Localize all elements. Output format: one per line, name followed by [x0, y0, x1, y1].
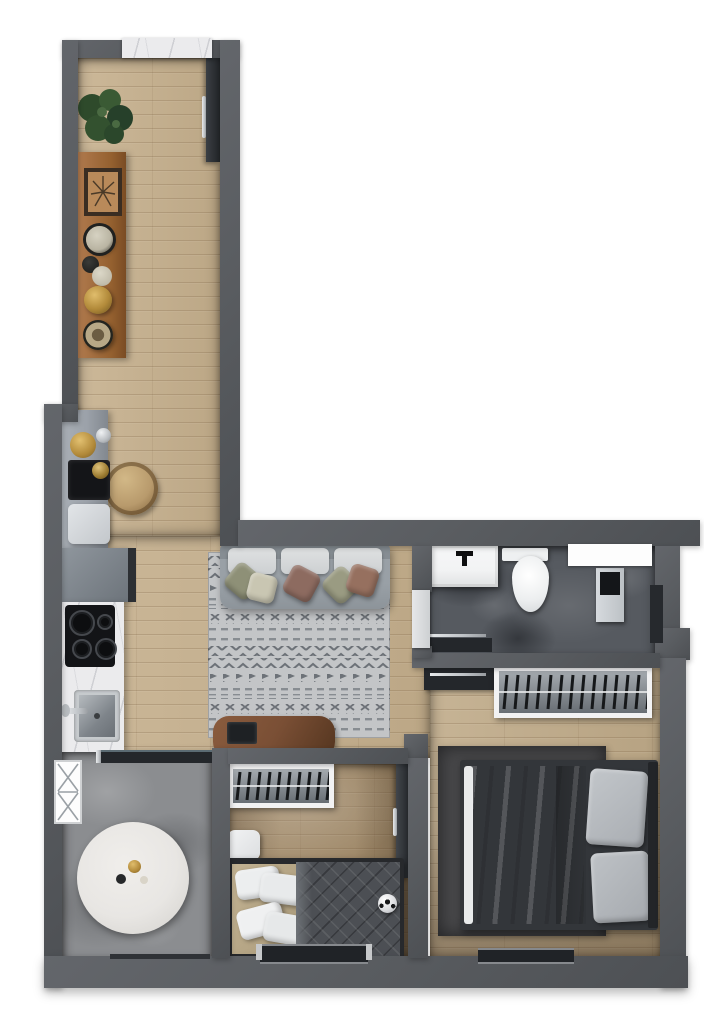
wall-dining-divider [212, 748, 230, 958]
sink-drain-icon [94, 713, 100, 719]
left-window [54, 760, 82, 824]
bathroom-window [568, 544, 652, 566]
bed-pillow [585, 768, 648, 848]
kitchen-window-marble-sill [122, 38, 212, 58]
decor-bowl-stack [83, 320, 113, 350]
refrigerator [62, 548, 128, 602]
wall-left-lower [44, 404, 62, 988]
sliding-glass-door [100, 750, 212, 763]
entry-door [206, 58, 220, 162]
gold-cup [92, 462, 109, 479]
soccer-ball [378, 894, 397, 913]
bed-pillow [590, 851, 652, 924]
burner-icon [95, 638, 117, 660]
laptop [227, 722, 257, 744]
primary-bedroom-window [478, 948, 574, 964]
decor-plate-medium [92, 266, 112, 286]
wardrobe [228, 764, 334, 808]
duvet-fold [296, 862, 312, 956]
door-handle-icon [393, 808, 397, 836]
wall-bedrooms-divider [408, 758, 428, 958]
bedroom2-window [260, 944, 368, 964]
floor-plan [0, 0, 704, 1024]
bedroom-sliding-door [424, 666, 496, 690]
brass-pot [84, 286, 112, 314]
gold-dish [70, 432, 96, 458]
vanity-faucet-icon [462, 551, 467, 566]
sink-basin [79, 695, 115, 737]
kitchen-sink [74, 690, 120, 742]
bathroom-door [412, 590, 430, 648]
wall-hallway-right [220, 40, 240, 546]
window-frame-cap-icon [256, 944, 262, 960]
double-bed [460, 760, 658, 930]
burner-icon [69, 610, 95, 636]
wardrobe-hangers-icon [499, 671, 647, 713]
gold-centerpiece [128, 860, 141, 873]
wall-wing-top [238, 520, 700, 546]
dining-window-line [110, 954, 210, 959]
bathroom-side-recess [650, 585, 663, 643]
burner-icon [72, 639, 92, 659]
framed-tray [84, 168, 122, 216]
candle [140, 876, 148, 884]
round-dining-table [77, 822, 189, 934]
wall-bedroom2-top [228, 748, 408, 764]
faucet-base-icon [61, 704, 70, 717]
cutting-board [68, 504, 110, 544]
duvet-fold [556, 766, 586, 924]
white-nightstand [228, 830, 260, 860]
burner-icon [97, 614, 113, 630]
shower-screen [600, 572, 620, 595]
refrigerator-edge [128, 548, 136, 602]
wall-bedroom-right [660, 658, 686, 988]
glass-shower-door [426, 638, 492, 652]
entry-door-handle-icon [202, 96, 206, 138]
dark-cup [116, 874, 126, 884]
sliding-door-cap-icon [96, 750, 101, 763]
wall-left-upper [62, 40, 78, 410]
window-frame-cap-icon [366, 944, 372, 960]
induction-cooktop [65, 605, 115, 667]
sliding-door-handle-icon [430, 673, 486, 676]
wardrobe-hangers-icon [233, 769, 329, 803]
potted-plant [72, 86, 142, 156]
shower-door-rail-icon [428, 634, 486, 637]
round-woven-basket [105, 462, 158, 515]
wardrobe [494, 666, 652, 718]
kettle [96, 428, 111, 443]
headboard [648, 762, 658, 928]
wall-bath-divider-a [412, 546, 432, 592]
decor-plate-large [86, 226, 113, 253]
wall-bathroom-bottom [412, 653, 660, 668]
